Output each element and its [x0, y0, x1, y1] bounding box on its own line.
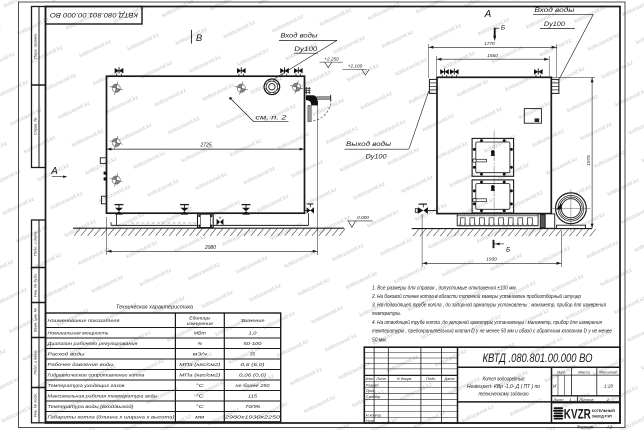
svg-text:Вход воды: Вход воды — [281, 33, 319, 40]
svg-text:КВТД.080.801.00.000 ВО: КВТД.080.801.00.000 ВО — [50, 11, 138, 18]
svg-text:+2.100: +2.100 — [348, 64, 363, 69]
svg-text:температуры , предохранительн: температуры , предохранительный клапан D… — [372, 328, 612, 335]
svg-text:1. Все размеры для справок ,: 1. Все размеры для справок , допустимые … — [372, 285, 517, 291]
svg-text:Подп.: Подп. — [426, 377, 436, 381]
svg-text:115: 115 — [248, 394, 257, 399]
svg-text:KVZR: KVZR — [564, 406, 591, 421]
svg-text:Dy100: Dy100 — [294, 46, 318, 53]
svg-text:мм: мм — [195, 415, 205, 420]
svg-text:0,06 (0,6): 0,06 (0,6) — [239, 373, 267, 378]
svg-text:Изм: Изм — [366, 377, 373, 381]
svg-text:50 мм.: 50 мм. — [372, 337, 387, 343]
svg-text:50-100: 50-100 — [244, 341, 262, 346]
svg-text:МПа (кгс/см2): МПа (кгс/см2) — [179, 373, 221, 378]
svg-text:техническому заданию: техническому заданию — [479, 392, 530, 398]
svg-text:Взам. инв. №: Взам. инв. № — [33, 307, 38, 332]
svg-text:+2.250: +2.250 — [324, 56, 339, 61]
svg-text:%: % — [198, 341, 202, 346]
svg-text:КВТД .080.801.00.000 ВО: КВТД .080.801.00.000 ВО — [483, 351, 593, 365]
svg-text:Масса: Масса — [578, 369, 590, 374]
svg-text:Габариты котла (длинна х ширин: Габариты котла (длинна х ширина х высота… — [48, 415, 176, 420]
svg-text:Т.контр.: Т.контр. — [366, 395, 381, 399]
svg-text:Формат: Формат — [577, 424, 594, 429]
svg-text:МВт: МВт — [194, 331, 206, 336]
svg-text:Лист: Лист — [375, 377, 386, 381]
svg-text:1770: 1770 — [484, 41, 495, 46]
svg-text:Справ. №: Справ. № — [33, 117, 38, 135]
svg-text:Лит.: Лит. — [556, 369, 566, 374]
svg-text:0,6 (6,0): 0,6 (6,0) — [241, 362, 266, 367]
svg-text:1,0: 1,0 — [249, 331, 257, 336]
svg-text:°С: °С — [196, 383, 205, 388]
svg-text:Инв. № дубл.: Инв. № дубл. — [33, 273, 38, 297]
svg-text:Dy100: Dy100 — [544, 21, 566, 28]
svg-text:ЗАВОД РЭП: ЗАВОД РЭП — [592, 413, 612, 418]
svg-text:Разраб.: Разраб. — [366, 383, 380, 387]
svg-text:1930: 1930 — [486, 257, 497, 263]
svg-text:А3: А3 — [606, 424, 613, 429]
svg-text:МПа (кгс/см2): МПа (кгс/см2) — [179, 362, 221, 367]
svg-text:2980х1930х2250: 2980х1930х2250 — [223, 415, 280, 420]
svg-text:Пров.: Пров. — [366, 389, 376, 393]
svg-text:Б: Б — [501, 25, 506, 32]
svg-text:Техническая характеристика: Техническая характеристика — [116, 304, 193, 310]
svg-text:Значение: Значение — [241, 318, 265, 323]
svg-text:Котел водогрейный: Котел водогрейный — [483, 376, 525, 383]
svg-text:Выход воды: Выход воды — [346, 141, 392, 148]
svg-text:Утв.: Утв. — [366, 419, 375, 423]
svg-text:Подп. и дата: Подп. и дата — [33, 349, 38, 374]
svg-text:Диапазон рабочего регулировани: Диапазон рабочего регулирования — [46, 341, 138, 346]
svg-text:м3/ч: м3/ч — [193, 352, 208, 357]
svg-text:А: А — [50, 166, 58, 177]
svg-text:35: 35 — [250, 352, 256, 357]
svg-text:Dy100: Dy100 — [366, 153, 388, 160]
svg-text:Номинальная мощность: Номинальная мощность — [48, 331, 110, 336]
svg-text:0.000: 0.000 — [357, 215, 369, 220]
svg-text:В: В — [196, 33, 203, 44]
svg-text:1560: 1560 — [487, 53, 498, 58]
svg-text:А: А — [484, 9, 492, 20]
svg-text:не более 250: не более 250 — [236, 383, 270, 388]
svg-text:см. п. 2: см. п. 2 — [255, 114, 287, 121]
svg-text:Максимальная рабочая температу: Максимальная рабочая температура воды — [48, 394, 159, 399]
svg-text:температуры.: температуры. — [372, 311, 401, 317]
svg-text:Гидравлическое сопротивление к: Гидравлическое сопротивление котла — [48, 373, 145, 378]
svg-text:Листов: Листов — [578, 397, 593, 402]
svg-text:Расход воды: Расход воды — [48, 352, 86, 357]
svg-text:Температура уходящих газов: Температура уходящих газов — [48, 383, 126, 388]
svg-text:Лист: Лист — [552, 397, 564, 402]
svg-text:Н.контр.: Н.контр. — [366, 413, 382, 417]
svg-text:Наименование показателя: Наименование показателя — [48, 318, 121, 323]
svg-text:2. На боковой стенке котла в: 2. На боковой стенке котла в области топ… — [371, 293, 581, 300]
svg-text:Температура воды (вход/выход): Температура воды (вход/выход) — [48, 404, 135, 409]
svg-text:Рабочее давление воды: Рабочее давление воды — [48, 362, 115, 367]
svg-text:Инв. № подл.: Инв. № подл. — [33, 393, 38, 417]
svg-text:Б: Б — [506, 246, 511, 253]
svg-text:измерения: измерения — [187, 321, 214, 326]
svg-text:1975: 1975 — [586, 155, 591, 166]
svg-text:2725: 2725 — [199, 143, 211, 149]
svg-text:Heatexpert- КВр -1,0- Д ( ПТ ): Heatexpert- КВр -1,0- Д ( ПТ ) по — [467, 384, 540, 390]
svg-text:1:20: 1:20 — [604, 384, 614, 390]
svg-text:2980: 2980 — [204, 245, 216, 251]
svg-text:°С: °С — [196, 394, 205, 399]
svg-text:3. На подводящей трубе котла: 3. На подводящей трубе котла , до запорн… — [372, 301, 606, 308]
svg-text:°С: °С — [196, 404, 205, 409]
svg-text:1: 1 — [569, 397, 571, 402]
svg-text:70/95: 70/95 — [245, 404, 260, 409]
svg-text:N докум.: N докум. — [397, 377, 412, 381]
svg-text:Дата: Дата — [443, 377, 454, 381]
svg-text:Вход воды: Вход воды — [534, 7, 575, 14]
svg-text:Масштаб: Масштаб — [599, 369, 618, 374]
svg-text:Единицы: Единицы — [189, 315, 211, 320]
svg-text:4. На отводящей трубе котла ,: 4. На отводящей трубе котла ,до запорной… — [372, 319, 602, 326]
svg-text:Перв. примен.: Перв. примен. — [33, 33, 38, 59]
svg-text:Подп. и дата: Подп. и дата — [33, 231, 38, 256]
